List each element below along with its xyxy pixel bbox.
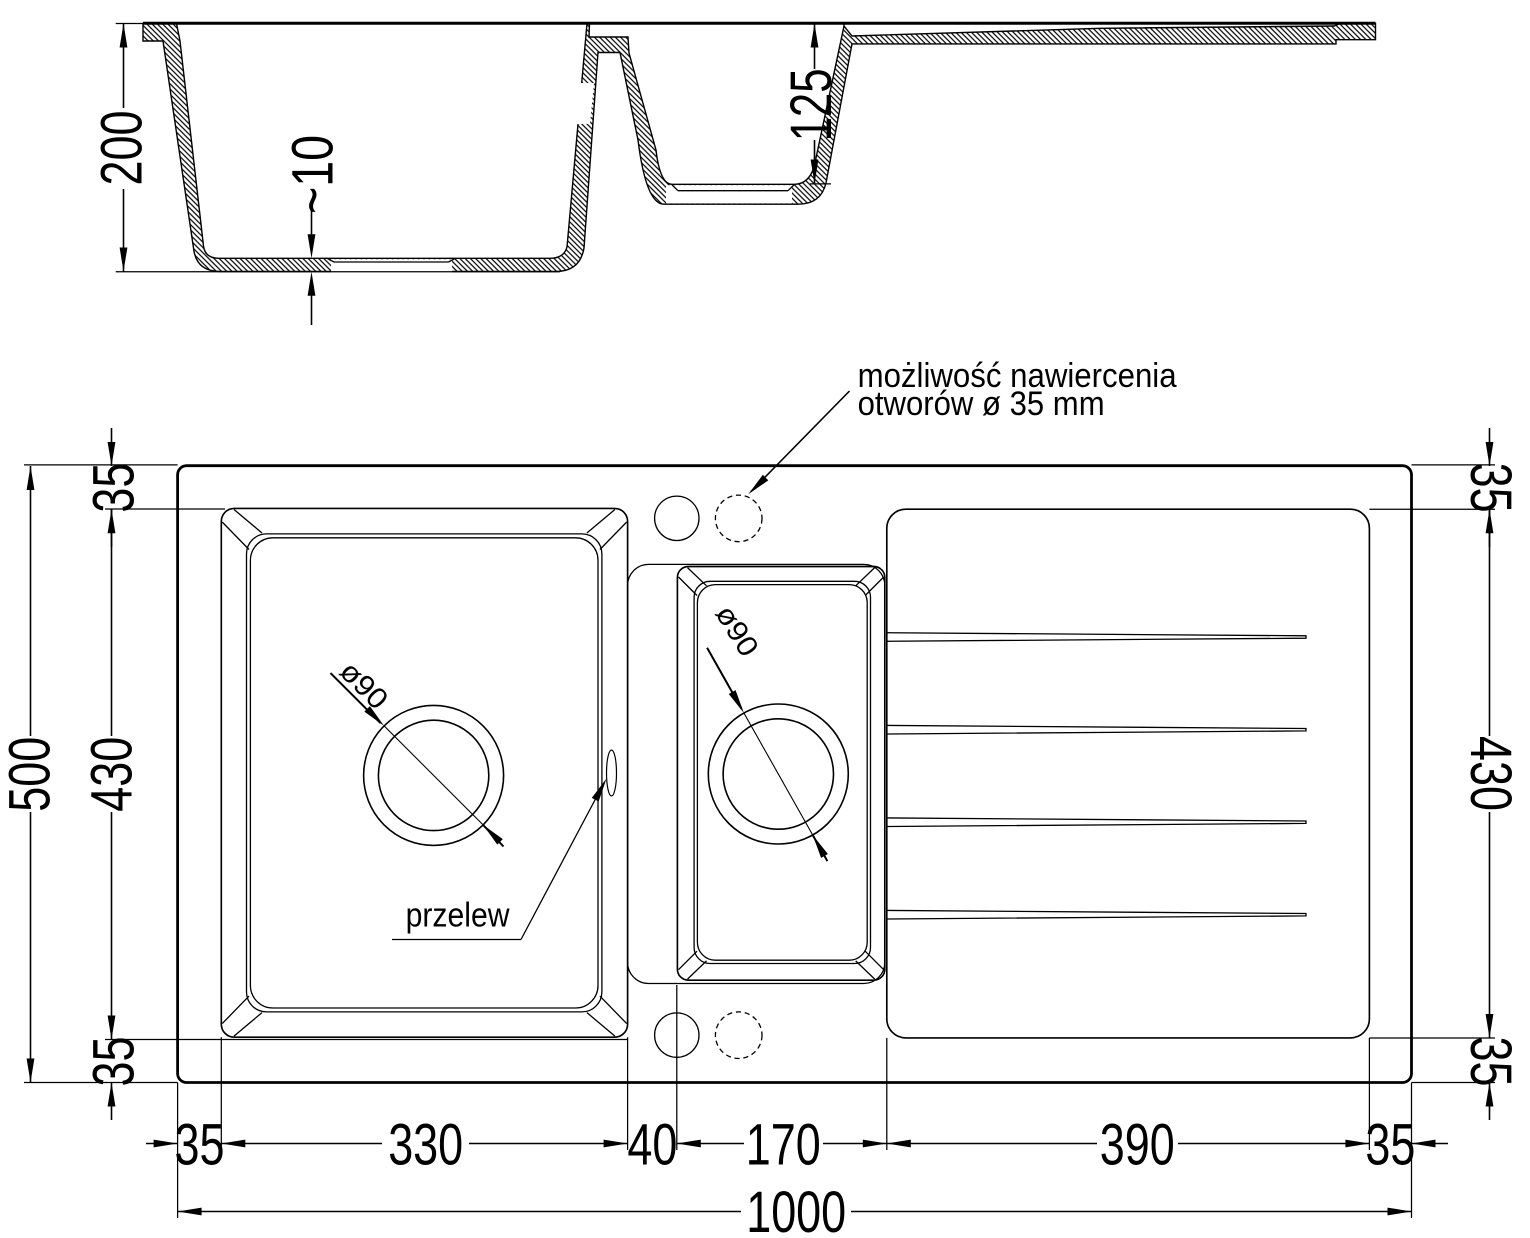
svg-text:ø90: ø90 xyxy=(333,655,394,716)
svg-text:~10: ~10 xyxy=(280,135,345,214)
svg-text:ø90: ø90 xyxy=(709,600,765,663)
svg-text:1000: 1000 xyxy=(746,1180,846,1238)
svg-text:35: 35 xyxy=(1365,1113,1415,1178)
svg-text:35: 35 xyxy=(82,1037,147,1087)
svg-text:35: 35 xyxy=(1458,463,1523,513)
svg-text:35: 35 xyxy=(82,463,147,513)
svg-text:390: 390 xyxy=(1100,1113,1175,1178)
svg-text:40: 40 xyxy=(627,1113,677,1178)
svg-text:500: 500 xyxy=(0,737,63,812)
svg-text:125: 125 xyxy=(779,68,844,141)
svg-text:430: 430 xyxy=(80,737,145,812)
svg-text:330: 330 xyxy=(388,1113,463,1178)
svg-text:35: 35 xyxy=(1458,1037,1523,1087)
svg-text:430: 430 xyxy=(1458,736,1523,811)
svg-text:200: 200 xyxy=(90,111,155,186)
svg-text:35: 35 xyxy=(175,1113,225,1178)
svg-text:170: 170 xyxy=(746,1113,821,1178)
svg-text:otworów ø 35 mm: otworów ø 35 mm xyxy=(858,385,1105,423)
svg-text:przelew: przelew xyxy=(406,897,510,935)
